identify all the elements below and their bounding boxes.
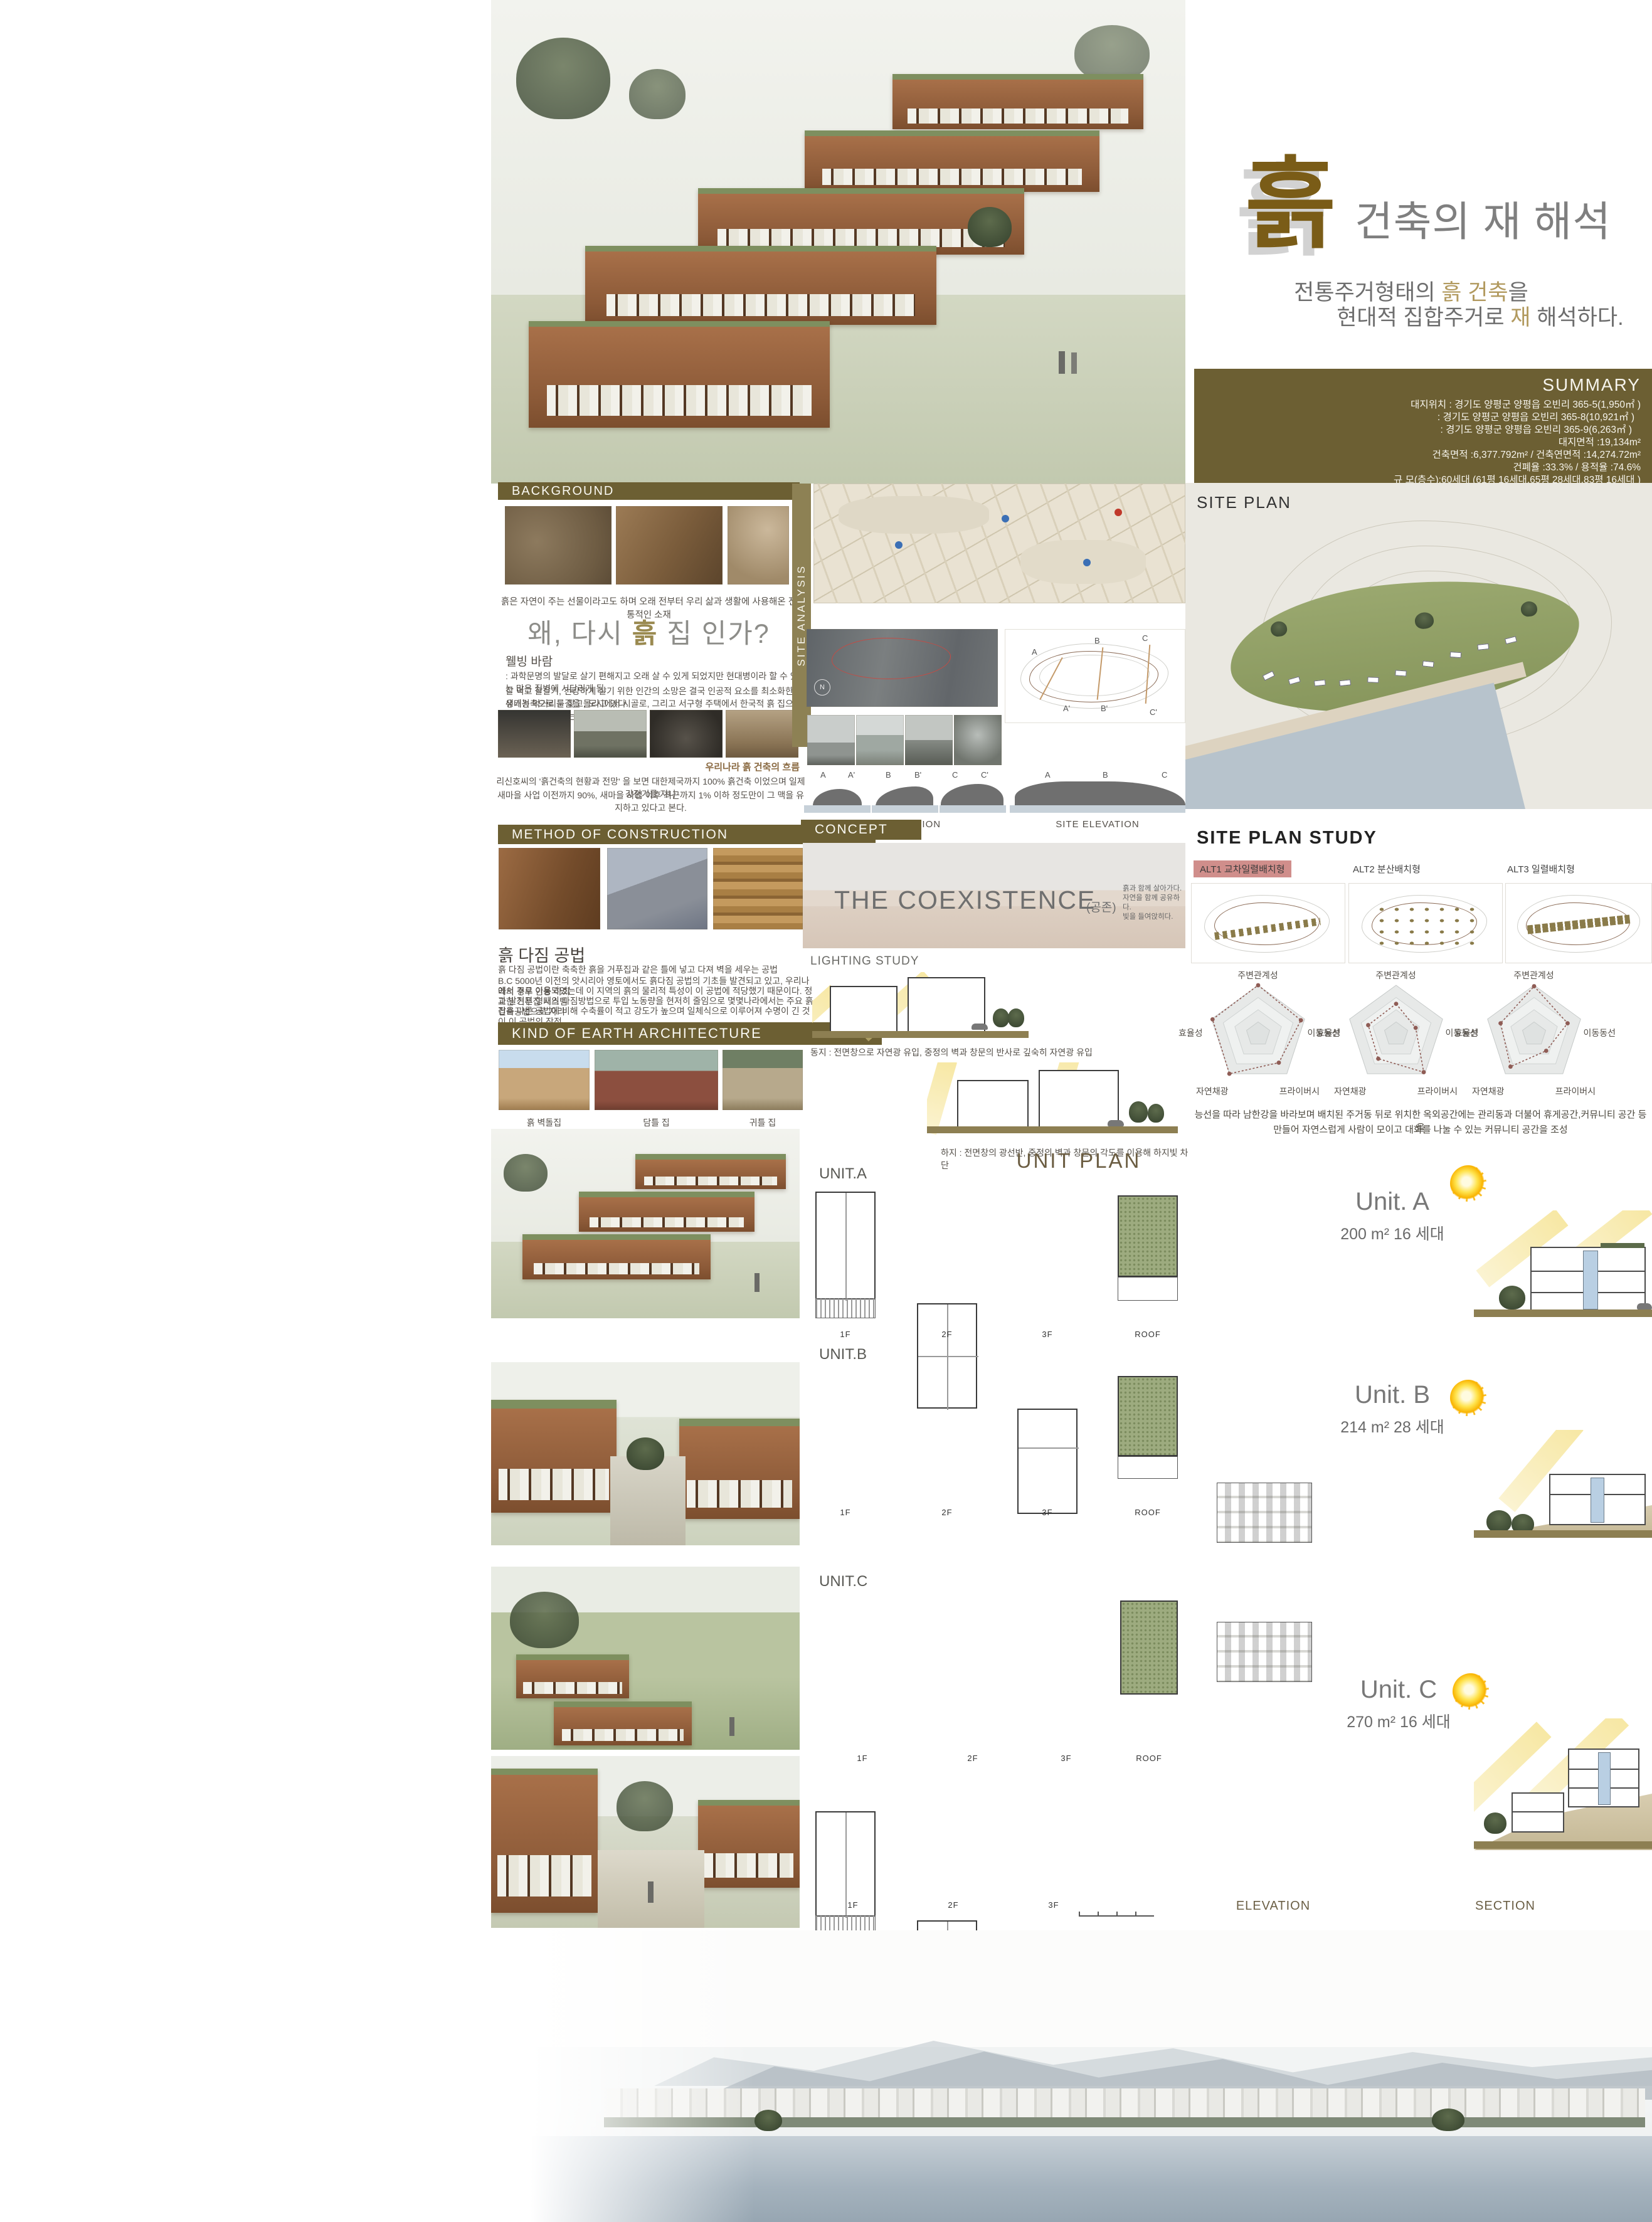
render-building bbox=[635, 1154, 786, 1189]
subtitle-line2: 현대적 집합주거로 재 해석하다. bbox=[1305, 300, 1652, 332]
background-photo-magnifier bbox=[728, 506, 789, 585]
summary-title: SUMMARY bbox=[1194, 375, 1641, 395]
summary-row: 건폐율 :33.3% / 용적율 :74.6% bbox=[1194, 462, 1641, 474]
window-strip bbox=[717, 229, 1005, 247]
hero-building-block bbox=[585, 246, 936, 325]
panorama-left-fade bbox=[491, 1930, 755, 2222]
why-photo-jars bbox=[650, 710, 723, 758]
radar-chart-alt3: 주변관계성 이동동선 프라이버시 자연채광 효율성 bbox=[1463, 969, 1604, 1098]
alt3-label: ALT3 일렬배치형 bbox=[1507, 862, 1575, 876]
method-heading: 흙 다짐 공법 bbox=[498, 942, 585, 966]
ground-strip bbox=[1474, 1841, 1652, 1849]
radar-axis-label: 프라이버시 bbox=[1555, 1085, 1596, 1098]
alt1-diagram bbox=[1191, 883, 1345, 963]
concept-line-1: 흙과 함께 살아가다. bbox=[1123, 884, 1185, 894]
render-building bbox=[579, 1192, 755, 1232]
radar-chart-alt1: 주변관계성 이동동선 프라이버시 자연채광 효율성 bbox=[1187, 969, 1328, 1098]
site-section-mark: B' bbox=[914, 770, 921, 780]
concept-line-3: 빛을 들여앉히다. bbox=[1123, 913, 1185, 922]
subtitle-l2b-accent: 재 bbox=[1510, 305, 1530, 330]
map-marker-blue bbox=[1002, 515, 1009, 522]
why-photo-earthwall bbox=[726, 710, 798, 758]
person-silhouette bbox=[729, 1717, 734, 1736]
summary-row: 대지위치 : 경기도 양평군 양평읍 오빈리 365-5(1,950㎡ ) bbox=[1194, 399, 1641, 411]
background-photo-soil bbox=[505, 506, 612, 585]
unit-b-roof-terrace bbox=[1118, 1456, 1178, 1479]
window-strip bbox=[822, 169, 1082, 186]
site-elevation-mark: C bbox=[1162, 770, 1167, 780]
panorama-render bbox=[491, 1930, 1652, 2222]
sun-icon bbox=[1453, 1673, 1489, 1710]
unit-a-plan-2f bbox=[917, 1303, 977, 1409]
section-building bbox=[1039, 1070, 1119, 1129]
floor-label: 1F bbox=[815, 1330, 876, 1339]
cut-label: A' bbox=[1063, 704, 1070, 713]
courtyard-glass bbox=[1591, 1478, 1604, 1523]
window-strip bbox=[590, 1217, 744, 1228]
courtyard-glass bbox=[1598, 1752, 1611, 1805]
person-silhouette bbox=[1059, 351, 1065, 374]
kind-header-label: KIND OF EARTH ARCHITECTURE bbox=[512, 1025, 762, 1042]
unit-a-label: UNIT.A bbox=[819, 1165, 867, 1183]
method-header-label: METHOD OF CONSTRUCTION bbox=[512, 827, 728, 842]
tree-blob bbox=[755, 2110, 782, 2131]
unit-a-roof-terrace bbox=[1118, 1277, 1178, 1301]
person-silhouette bbox=[755, 1273, 760, 1292]
plan-wall bbox=[1019, 1447, 1079, 1449]
concept-line-2: 자연을 함께 공유하다. bbox=[1123, 894, 1185, 913]
site-plan-building bbox=[1367, 677, 1379, 683]
site-analysis-vertical-header: SITE ANALYSIS bbox=[792, 484, 811, 747]
floor-label: ROOF bbox=[1120, 1754, 1178, 1763]
unit-a-spec: 200 m² 16 세대 bbox=[1323, 1222, 1461, 1244]
elevation-label: ELEVATION bbox=[1223, 1899, 1323, 1913]
site-plan-building bbox=[1314, 680, 1326, 687]
site-plan-building bbox=[1505, 636, 1517, 644]
courtyard-glass bbox=[1583, 1251, 1598, 1309]
site-elevation-water bbox=[1010, 805, 1185, 813]
site-analysis-map bbox=[813, 484, 1185, 603]
section-building bbox=[1568, 1749, 1639, 1807]
window-strip bbox=[644, 1177, 776, 1185]
concept-lines: 흙과 함께 살아가다. 자연을 함께 공유하다. 빛을 들여앉히다. bbox=[1123, 884, 1185, 922]
summary-row: 건축면적 :6,377.792m² / 건축연면적 :14,274.72m² bbox=[1194, 449, 1641, 462]
site-plan-building bbox=[1477, 643, 1489, 650]
kind-caption-1: 흙 벽돌집 bbox=[499, 1116, 590, 1129]
ground-strip bbox=[1474, 1530, 1652, 1538]
site-elevation-label: SITE ELEVATION bbox=[1010, 819, 1185, 830]
tree-blob bbox=[510, 1592, 579, 1648]
cut-label: C bbox=[1142, 633, 1148, 643]
sun-icon bbox=[1450, 1165, 1486, 1202]
site-elevation-profile bbox=[1015, 781, 1185, 808]
hero-building-block bbox=[805, 130, 1099, 192]
site-analysis-label: SITE ANALYSIS bbox=[795, 564, 808, 666]
subtitle-l2a: 현대적 집합주거로 bbox=[1337, 305, 1510, 330]
floor-label: 2F bbox=[938, 1754, 1007, 1763]
concept-header-label: CONCEPT bbox=[815, 822, 888, 837]
radar-axis-label: 자연채광 bbox=[1334, 1085, 1367, 1098]
aerial-photo: N bbox=[807, 629, 998, 707]
site-plan-building bbox=[1263, 670, 1275, 680]
concept-section-header: CONCEPT bbox=[801, 820, 921, 840]
tree-blob bbox=[1499, 1286, 1525, 1309]
kind-caption-3: 귀틀 집 bbox=[723, 1116, 803, 1129]
unit-a-plan-1f bbox=[815, 1192, 876, 1299]
section-building bbox=[1530, 1247, 1646, 1312]
site-plan-building bbox=[1395, 670, 1407, 676]
alt3-diagram bbox=[1505, 883, 1652, 963]
subtitle-l2c: 해석하다. bbox=[1531, 305, 1624, 330]
summary-row: : 경기도 양평군 양평읍 오빈리 365-9(6,263㎡ ) bbox=[1194, 424, 1641, 436]
site-section-mark: B bbox=[886, 770, 891, 780]
map-marker-blue bbox=[895, 541, 903, 549]
floor-label: ROOF bbox=[1118, 1508, 1178, 1517]
render-hillside-3 bbox=[491, 1567, 800, 1750]
ground-strip bbox=[927, 1126, 1178, 1133]
map-marker-red bbox=[1115, 509, 1122, 516]
section-building bbox=[957, 1080, 1029, 1129]
site-photo-3 bbox=[905, 715, 953, 765]
map-terrain-patch bbox=[839, 496, 989, 534]
unit-a-elevation-front bbox=[1217, 1483, 1312, 1543]
aerial-site-boundary bbox=[832, 638, 951, 679]
site-photo-2 bbox=[856, 715, 904, 765]
radar-svg-alt3 bbox=[1468, 979, 1600, 1087]
lighting-diagram-winter bbox=[812, 972, 1044, 1042]
tree-blob bbox=[617, 1781, 673, 1831]
floor-label: 2F bbox=[916, 1900, 991, 1910]
cut-label: B bbox=[1094, 636, 1100, 645]
compass-north-icon: N bbox=[814, 679, 830, 696]
background-section-header: BACKGROUND bbox=[498, 482, 800, 500]
floor-label: 1F bbox=[815, 1900, 891, 1910]
tree-blob bbox=[1484, 1812, 1506, 1834]
floor-label: 1F bbox=[809, 1754, 916, 1763]
unit-a-plan-3f bbox=[1017, 1409, 1078, 1514]
site-section-hill-a bbox=[813, 789, 862, 807]
tree-blob bbox=[1486, 1510, 1512, 1533]
plan-wall bbox=[918, 1356, 978, 1357]
concept-title: THE COEXISTENCE bbox=[834, 886, 1098, 915]
tree-blob bbox=[516, 38, 610, 119]
cut-label: C' bbox=[1150, 707, 1157, 717]
render-building bbox=[554, 1701, 692, 1745]
alt1-label: ALT1 교차일렬배치형 bbox=[1194, 860, 1291, 877]
site-photo-4 bbox=[954, 715, 1002, 765]
method-photo-formwork bbox=[499, 848, 600, 929]
site-section-mark: A' bbox=[848, 770, 855, 780]
floor-label: 2F bbox=[917, 1330, 977, 1339]
tree-blob bbox=[1520, 601, 1538, 618]
radar-svg-alt2 bbox=[1330, 979, 1462, 1087]
site-section-water bbox=[804, 805, 871, 813]
why-photo-interior bbox=[498, 710, 571, 758]
render-building bbox=[679, 1419, 800, 1519]
why-subhead: 웰빙 바람 bbox=[506, 652, 553, 669]
radar-axis-label: 자연채광 bbox=[1196, 1085, 1229, 1098]
kind-photo-mudbrick bbox=[499, 1050, 590, 1110]
map-marker-blue bbox=[1083, 559, 1091, 566]
why-heading-a: 왜, 다시 bbox=[527, 619, 632, 649]
kind-photo-damtl bbox=[595, 1050, 718, 1110]
unit-a-elevation-rear bbox=[1217, 1622, 1312, 1682]
kind-caption-2: 담틀 집 bbox=[595, 1116, 718, 1129]
summary-row: : 경기도 양평군 양평읍 오빈리 365-8(10,921㎡ ) bbox=[1194, 411, 1641, 424]
window-strip bbox=[908, 108, 1128, 124]
floor-line bbox=[1513, 1811, 1563, 1812]
site-section-hill-c bbox=[941, 784, 1003, 807]
hero-building-block bbox=[892, 74, 1143, 129]
render-building bbox=[491, 1400, 617, 1513]
tree-blob bbox=[993, 1008, 1009, 1027]
tree-blob bbox=[1414, 611, 1435, 630]
sunbeam bbox=[927, 1062, 957, 1135]
unit-c-section-render bbox=[1474, 1718, 1652, 1850]
radar-axis-label: 프라이버시 bbox=[1417, 1085, 1458, 1098]
scale-bar bbox=[1079, 1912, 1154, 1917]
render-building bbox=[491, 1769, 598, 1913]
window-strip bbox=[687, 1480, 793, 1508]
car-silhouette bbox=[1637, 1303, 1652, 1309]
hero-building-block bbox=[529, 321, 830, 428]
section-label: SECTION bbox=[1461, 1899, 1549, 1913]
contour-study-diagram: A A' B B' C C' bbox=[1005, 629, 1185, 723]
floor-label: ROOF bbox=[1118, 1330, 1178, 1339]
site-plan-building bbox=[1422, 660, 1434, 667]
radar-chart-alt2: 주변관계성 이동동선 프라이버시 자연채광 효율성 bbox=[1325, 969, 1466, 1098]
window-strip bbox=[606, 294, 916, 316]
cut-label: A bbox=[1032, 647, 1037, 657]
lighting-diagram-summer bbox=[927, 1062, 1178, 1139]
render-street-4 bbox=[491, 1756, 800, 1928]
method-body-1: 흙 다짐 공법이란 축축한 흙을 거푸집과 같은 틀에 넣고 다져 벽을 세우는… bbox=[498, 965, 815, 975]
window-strip bbox=[499, 1469, 609, 1500]
cut-label: B' bbox=[1101, 704, 1108, 713]
concept-subtitle: (공존) bbox=[1086, 898, 1116, 915]
method-photo-rammed-earth bbox=[713, 848, 803, 929]
radar-axis-label: 자연채광 bbox=[1472, 1085, 1505, 1098]
floor-label: 3F bbox=[1029, 1754, 1104, 1763]
background-header-label: BACKGROUND bbox=[512, 484, 614, 499]
window-strip bbox=[497, 1855, 591, 1897]
window-strip bbox=[523, 1682, 622, 1693]
render-courtyard-2 bbox=[491, 1362, 800, 1545]
site-plan-study-label: SITE PLAN STUDY bbox=[1197, 828, 1377, 849]
site-plan-building bbox=[1339, 679, 1351, 686]
flow-title: 우리나라 흙 건축의 흐름 bbox=[621, 760, 800, 773]
alt2-diagram bbox=[1348, 883, 1503, 963]
why-heading: 왜, 다시 흙 집 인가? bbox=[498, 612, 800, 651]
summary-box: SUMMARY 대지위치 : 경기도 양평군 양평읍 오빈리 365-5(1,9… bbox=[1194, 369, 1652, 483]
ground-strip bbox=[812, 1031, 1029, 1038]
lighting-study-label: LIGHTING STUDY bbox=[810, 955, 919, 968]
site-section-mark: A bbox=[820, 770, 826, 780]
lighting-caption-winter: 동지 : 전면창으로 자연광 유입, 중정의 벽과 창문의 반사로 깊숙히 자연… bbox=[810, 1046, 1187, 1059]
tree-blob bbox=[1148, 1104, 1164, 1123]
tree-blob bbox=[629, 69, 686, 119]
window-strip bbox=[704, 1853, 794, 1878]
site-section-mark: C bbox=[952, 770, 958, 780]
car-silhouette bbox=[972, 1024, 988, 1030]
alt2-label: ALT2 분산배치형 bbox=[1353, 862, 1421, 876]
floor-label: 3F bbox=[1016, 1900, 1091, 1910]
alt2-scattered-buildings bbox=[1374, 904, 1478, 945]
window-strip bbox=[562, 1729, 684, 1740]
plan-deck bbox=[815, 1298, 876, 1318]
tree-blob bbox=[504, 1154, 548, 1192]
summary-row: 대지면적 :19,134m² bbox=[1194, 436, 1641, 449]
sun-icon bbox=[1450, 1380, 1486, 1416]
kind-photo-gwitl bbox=[723, 1050, 803, 1110]
render-building bbox=[516, 1654, 629, 1698]
floor-label: 1F bbox=[815, 1508, 876, 1517]
site-plan-building bbox=[1450, 652, 1462, 658]
unit-b-section-render bbox=[1474, 1430, 1652, 1538]
unit-c-label: UNIT.C bbox=[819, 1573, 867, 1590]
site-elevation-mark: A bbox=[1045, 770, 1051, 780]
tree-blob bbox=[968, 207, 1012, 247]
why-heading-c: 집 인가? bbox=[658, 619, 770, 649]
tree-blob bbox=[627, 1437, 664, 1470]
window-strip bbox=[534, 1263, 699, 1275]
compass-n-label: N bbox=[820, 684, 825, 691]
unit-c-spec: 270 m² 16 세대 bbox=[1330, 1710, 1468, 1732]
section-building bbox=[1549, 1474, 1646, 1525]
tree-blob bbox=[1129, 1101, 1148, 1123]
site-elevation-mark: B bbox=[1103, 770, 1108, 780]
window-strip bbox=[547, 385, 812, 415]
car-silhouette bbox=[1108, 1120, 1124, 1126]
radar-svg-alt1 bbox=[1192, 979, 1324, 1087]
ground-strip bbox=[1474, 1309, 1652, 1317]
section-building bbox=[830, 986, 897, 1034]
site-plan-building bbox=[1288, 676, 1301, 685]
unit-c-name: Unit. C bbox=[1342, 1676, 1455, 1704]
method-photo-structure bbox=[607, 848, 707, 929]
concept-image: THE COEXISTENCE (공존) 흙과 함께 살아가다. 자연을 함께 … bbox=[803, 843, 1185, 948]
site-plan-panel: SITE PLAN bbox=[1185, 483, 1652, 809]
why-photo-village bbox=[574, 710, 647, 758]
unit-b-name: Unit. B bbox=[1336, 1381, 1449, 1409]
why-heading-earth: 흙 bbox=[632, 619, 659, 649]
hero-render-image bbox=[491, 0, 1185, 484]
flow-body-2: 새마을 사업 이전까지 90%, 새마을 사업 이후 최근까지 1% 이하 정도… bbox=[495, 789, 806, 814]
floor-label: 3F bbox=[1017, 1330, 1078, 1339]
sps-caption-2: 만들어 자연스럽게 사람이 모이고 대화를 나눌 수 있는 커뮤니티 공간을 조… bbox=[1192, 1123, 1649, 1136]
floor-label: 3F bbox=[1017, 1508, 1078, 1517]
poster-page: 흙 건축의 재 해석 전통주거형태의 흙 건축을 현대적 집합주거로 재 해석하… bbox=[0, 0, 1652, 2222]
person-silhouette bbox=[648, 1881, 654, 1903]
plan-wall bbox=[845, 1193, 847, 1301]
tree-blob bbox=[1270, 621, 1288, 638]
site-section-mark: C' bbox=[981, 770, 988, 780]
background-photo-hands bbox=[616, 506, 723, 585]
unit-b-label: UNIT.B bbox=[819, 1346, 867, 1363]
person-silhouette bbox=[1071, 352, 1077, 374]
site-section-hill-b bbox=[876, 786, 933, 807]
tree-blob bbox=[1432, 2108, 1464, 2131]
unit-a-section-render bbox=[1474, 1210, 1652, 1318]
page-title: 건축의 재 해석 bbox=[1355, 188, 1652, 248]
unit-b-plan-roof bbox=[1118, 1376, 1178, 1456]
plan-wall bbox=[947, 1304, 948, 1410]
render-terrace-1 bbox=[491, 1129, 800, 1318]
unit-a-plan-roof bbox=[1118, 1195, 1178, 1277]
tree-blob bbox=[1008, 1008, 1024, 1027]
render-building bbox=[698, 1800, 800, 1888]
green-roof-strip bbox=[1601, 1243, 1644, 1248]
site-plan-label: SITE PLAN bbox=[1197, 493, 1291, 512]
site-section-water bbox=[940, 805, 1006, 813]
tree-blob bbox=[1074, 25, 1150, 82]
unit-a-name: Unit. A bbox=[1336, 1188, 1449, 1216]
section-building bbox=[1512, 1792, 1564, 1833]
floor-label: 2F bbox=[917, 1508, 977, 1517]
unit-plan-title: UNIT PLAN bbox=[978, 1149, 1179, 1173]
render-building bbox=[522, 1234, 711, 1279]
unit-b-spec: 214 m² 28 세대 bbox=[1323, 1415, 1461, 1437]
site-photo-1 bbox=[807, 715, 855, 765]
site-section-water bbox=[872, 805, 938, 813]
radar-axis-label: 프라이버시 bbox=[1279, 1085, 1320, 1098]
unit-c-plan-roof bbox=[1120, 1600, 1178, 1695]
